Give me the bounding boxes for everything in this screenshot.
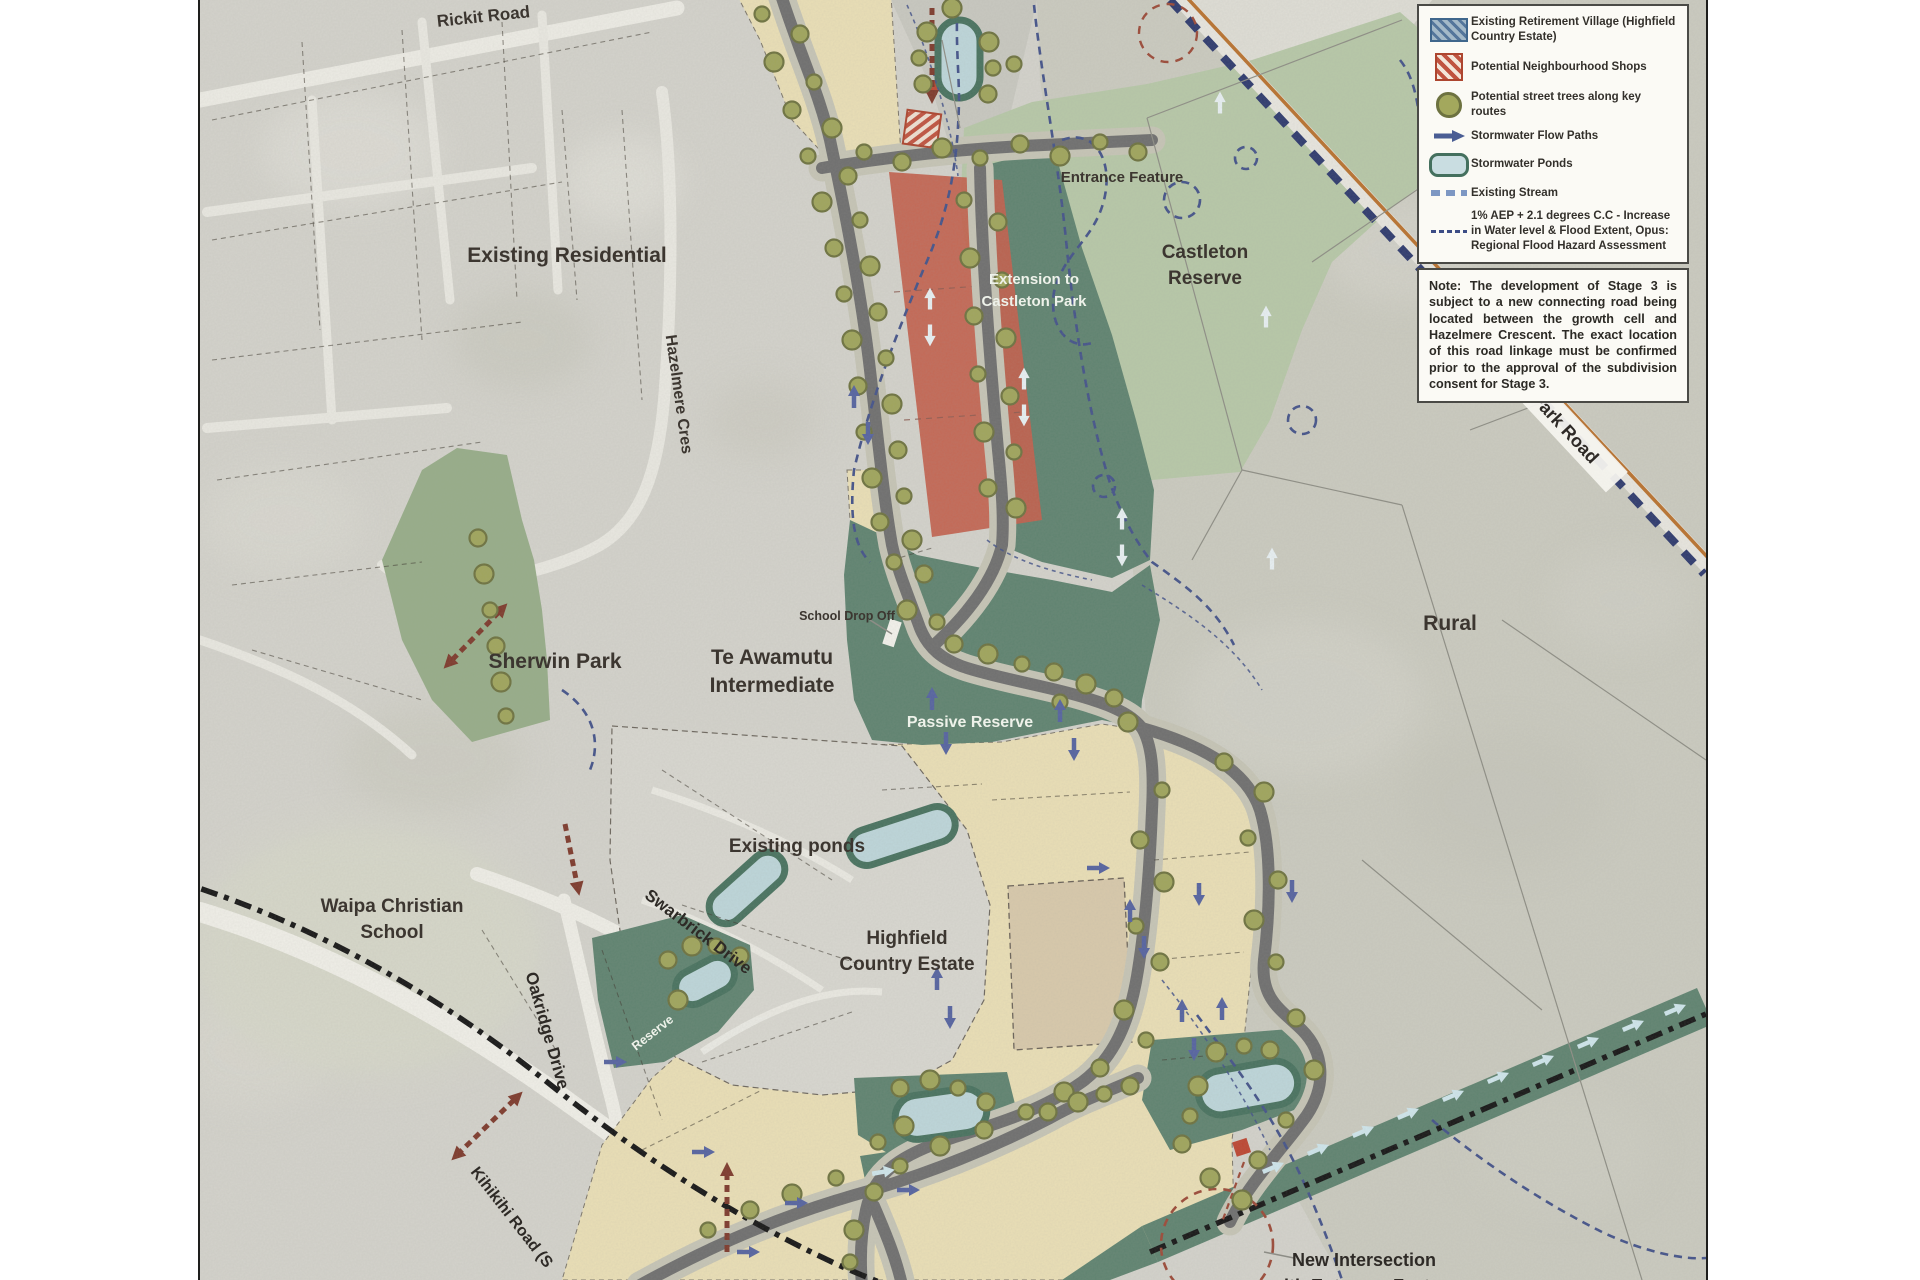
legend-item-label: Stormwater Ponds [1471,157,1573,172]
waipa-label-1: Waipa Christian [321,896,464,917]
waipa-label-2: School [360,922,423,943]
legend-item-label: Stormwater Flow Paths [1471,129,1598,144]
new-intersection-label-1: New Intersection [1292,1250,1436,1270]
sherwin-park-label: Sherwin Park [488,650,621,673]
legend-item-label: Existing Stream [1471,186,1558,201]
passive-reserve-label: Passive Reserve [907,714,1033,731]
legend-item-flow-paths: Stormwater Flow Paths [1427,129,1679,144]
new-intersection-label-2: with Entrance Feature [1269,1276,1458,1280]
legend-item-flood-extent: 1% AEP + 2.1 degrees C.C - Increase in W… [1427,209,1679,253]
te-awamutu-label-1: Te Awamutu [711,646,833,669]
flood-extent-dash-swatch [1431,230,1467,233]
extension-castleton-label-2: Castleton Park [981,293,1087,310]
stage3-note-text: Note: The development of Stage 3 is subj… [1429,279,1677,391]
legend-item-label: Potential Neighbourhood Shops [1471,60,1647,75]
existing-ponds-label: Existing ponds [729,836,865,857]
castleton-reserve-label-1: Castleton [1162,242,1249,263]
entrance-feature-label: Entrance Feature [1061,169,1184,186]
school-dropoff-label: School Drop Off [799,609,896,623]
legend-item-label: Existing Retirement Village (Highfield C… [1471,15,1679,44]
legend-item-retirement-village: Existing Retirement Village (Highfield C… [1427,15,1679,44]
legend-item-street-trees: Potential street trees along key routes [1427,90,1679,119]
legend-item-label: Potential street trees along key routes [1471,90,1679,119]
te-awamutu-label-2: Intermediate [710,674,835,697]
stormwater-pond-swatch [1429,153,1469,177]
stormwater-flow-arrow-icon [1432,129,1466,143]
castleton-reserve-label-2: Reserve [1168,268,1242,289]
legend-item-neighbourhood-shops: Potential Neighbourhood Shops [1427,53,1679,81]
retirement-village-hatch-swatch [1430,18,1468,42]
legend-item-existing-stream: Existing Stream [1427,186,1679,201]
street-tree-icon [1436,92,1462,118]
highfield-label-2: Country Estate [839,954,974,975]
highfield-label-1: Highfield [866,928,947,949]
legend-item-label: 1% AEP + 2.1 degrees C.C - Increase in W… [1471,209,1679,253]
rural-label: Rural [1423,612,1477,635]
structure-plan-page: Rickit Road Existing Residential Hazelme… [0,0,1920,1280]
extension-castleton-label-1: Extension to [989,271,1079,288]
legend-box: Existing Retirement Village (Highfield C… [1417,4,1689,264]
neighbourhood-shops-hatch-swatch [1435,53,1463,81]
existing-stream-dash-swatch [1431,190,1467,196]
legend-item-ponds: Stormwater Ponds [1427,153,1679,177]
stage3-note-box: Note: The development of Stage 3 is subj… [1417,268,1689,403]
existing-residential-label: Existing Residential [467,244,667,267]
